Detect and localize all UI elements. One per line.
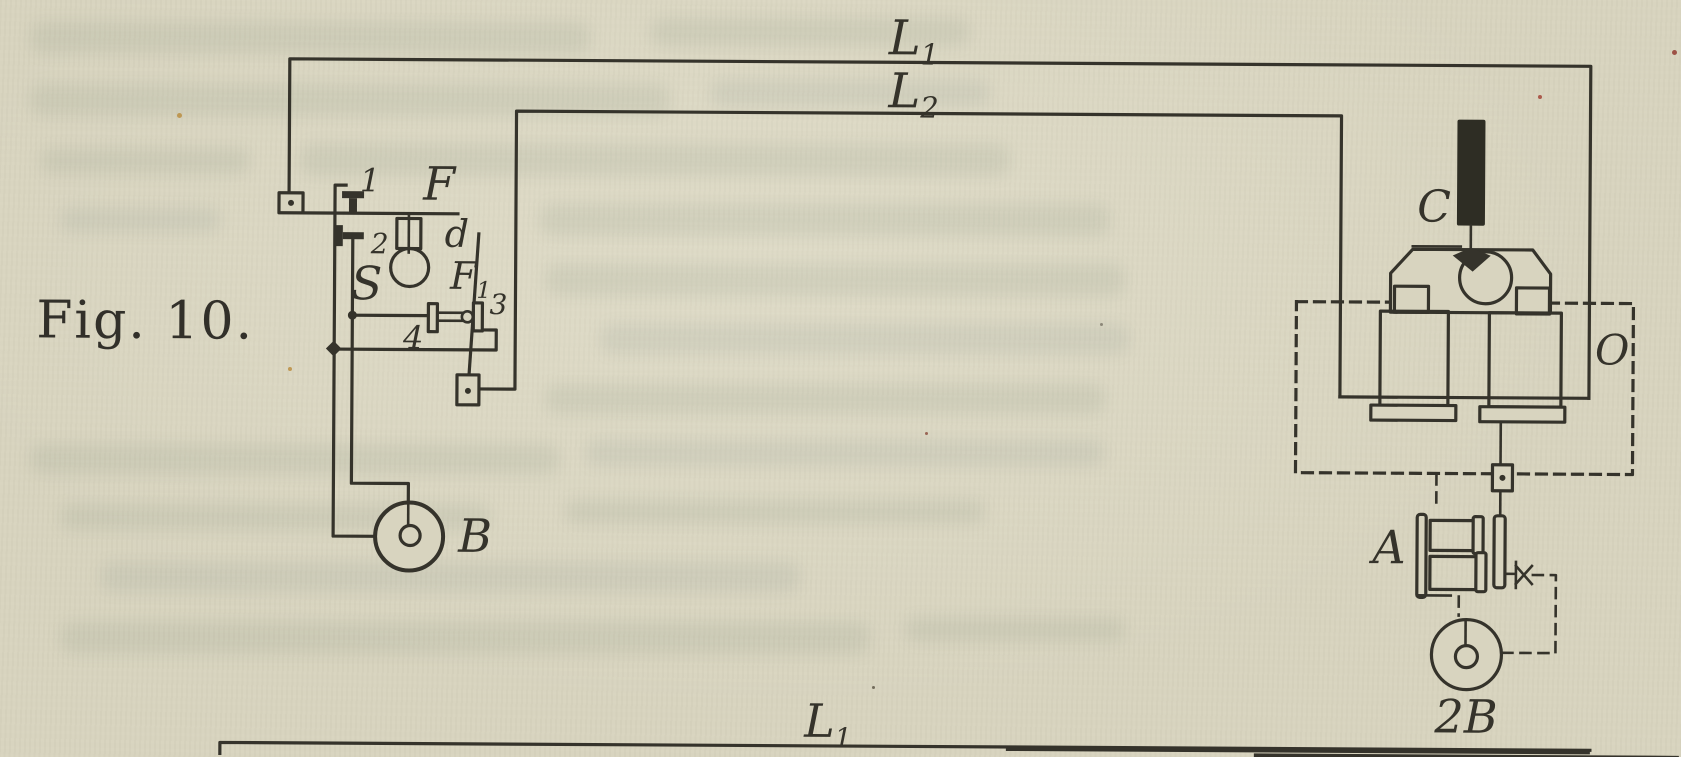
figure-caption: Fig. 10. xyxy=(36,290,254,351)
label-line-L2: L2 xyxy=(887,63,939,124)
label-frame-F: F xyxy=(422,157,457,211)
contact-rail-wire xyxy=(303,213,458,214)
junction-battery-wire xyxy=(333,349,375,536)
label-contact-4: 4 xyxy=(402,318,424,356)
line-L2-loop xyxy=(479,111,1342,397)
bottom-line-L1 xyxy=(220,742,1679,757)
receiver-station xyxy=(1294,119,1634,691)
label-electromagnet-A: A xyxy=(1368,520,1406,574)
battery-2B xyxy=(1431,619,1501,689)
telegraph-circuit-diagram: Fig. 10. L1 L2 L1 F 1 2 d F1 S 3 4 B C O… xyxy=(0,0,1681,757)
frame-post-wire xyxy=(334,185,346,349)
label-contact-1: 1 xyxy=(360,161,381,199)
label-pendulum-d: d xyxy=(445,212,470,256)
label-battery-2B: 2B xyxy=(1433,689,1497,743)
contact-screw-2 xyxy=(334,225,364,246)
battery-B xyxy=(375,502,443,570)
label-pen-C: C xyxy=(1417,181,1451,232)
label-spring-S: S xyxy=(351,256,383,310)
relay-bus-wire xyxy=(1340,397,1589,398)
scanned-book-page: Fig. 10. L1 L2 L1 F 1 2 d F1 S 3 4 B C O… xyxy=(0,0,1681,757)
label-lever-F1: F1 xyxy=(449,254,491,304)
label-local-circuit-O: O xyxy=(1595,325,1630,374)
label-battery-B: B xyxy=(457,509,492,563)
label-line-L1-bottom: L1 xyxy=(803,694,852,754)
label-contact-3: 3 xyxy=(489,288,507,321)
armature-contact xyxy=(1505,562,1532,588)
line-L1-loop xyxy=(288,59,1591,398)
pendulum-bob xyxy=(391,248,429,286)
armature-plate xyxy=(1494,516,1505,588)
local-circuit-dashed-box xyxy=(1295,302,1633,475)
